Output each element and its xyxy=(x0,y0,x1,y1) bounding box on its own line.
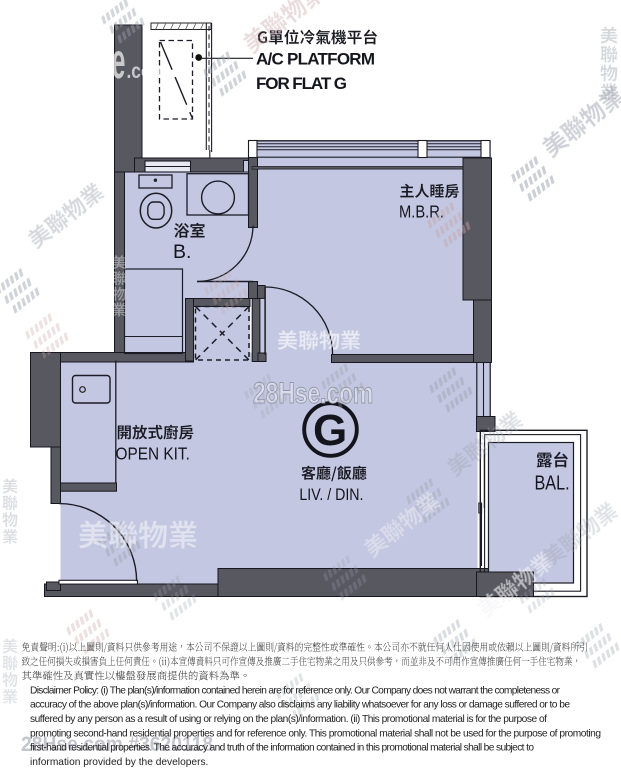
svg-text:OPEN KIT.: OPEN KIT. xyxy=(116,445,190,464)
svg-text:LIV. / DIN.: LIV. / DIN. xyxy=(299,486,363,504)
svg-text:Disclaimer Policy: (i) The pla: Disclaimer Policy: (i) The plan(s)/infor… xyxy=(30,685,561,696)
svg-text:suffered by any person as a re: suffered by any person as a result of us… xyxy=(30,714,547,725)
svg-text:FOR FLAT G: FOR FLAT G xyxy=(256,74,347,93)
svg-text:G: G xyxy=(313,406,347,455)
svg-text:M.B.R.: M.B.R. xyxy=(399,202,444,221)
svg-text:promoting second-hand resident: promoting second-hand residential proper… xyxy=(30,728,601,739)
svg-text:A/C PLATFORM: A/C PLATFORM xyxy=(256,50,375,69)
svg-text:first-hand residential propert: first-hand residential properties. The a… xyxy=(30,743,534,754)
svg-text:e: e xyxy=(112,34,126,90)
svg-text:accuracy of the above plan(s)/: accuracy of the above plan(s)/informatio… xyxy=(30,700,570,711)
svg-text:B.: B. xyxy=(173,241,191,263)
svg-text:information provided by the de: information provided by the developers. xyxy=(30,757,208,768)
svg-text:.com: .com xyxy=(127,61,167,84)
svg-text:BAL.: BAL. xyxy=(535,472,570,494)
